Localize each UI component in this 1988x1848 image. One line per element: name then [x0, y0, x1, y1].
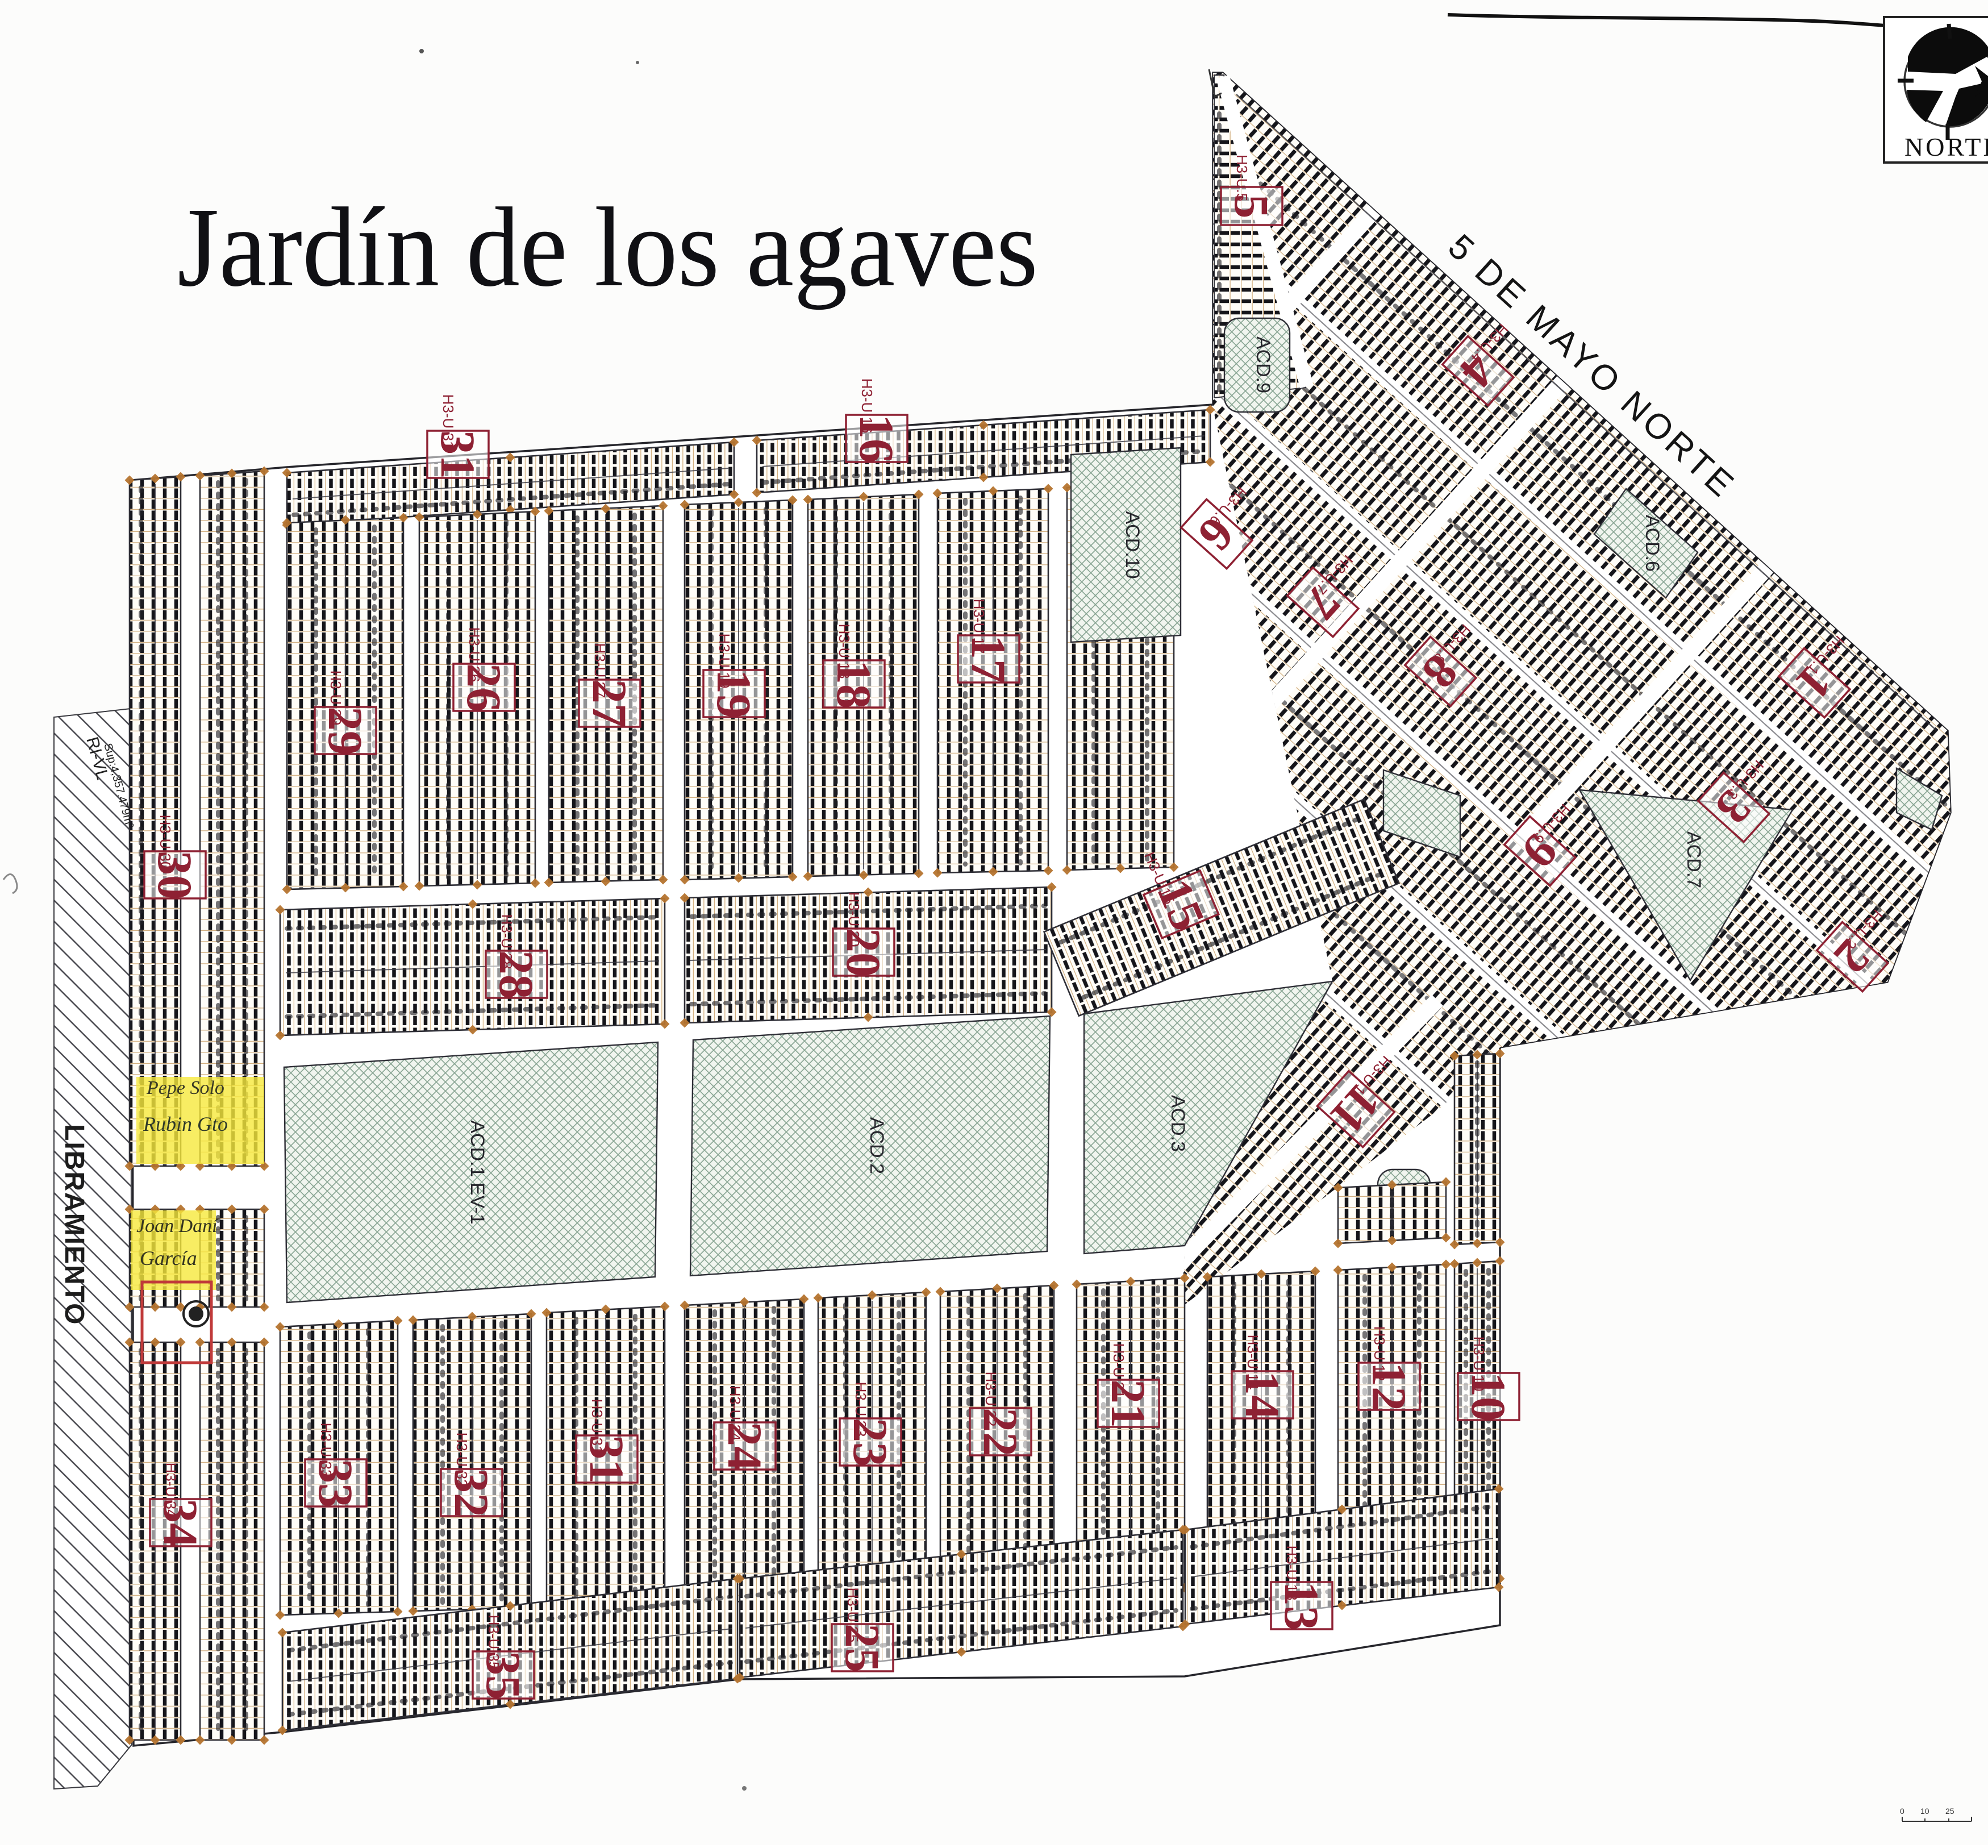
svg-text:García: García — [140, 1247, 197, 1270]
svg-text:31: 31 — [431, 430, 485, 479]
svg-text:32: 32 — [444, 1468, 499, 1517]
svg-text:27: 27 — [582, 679, 637, 728]
svg-text:H3-U.16: H3-U.16 — [858, 378, 876, 434]
svg-text:H3-U.10: H3-U.10 — [1470, 1337, 1487, 1392]
svg-text:NORTE: NORTE — [1904, 132, 1988, 161]
svg-text:ACD.10: ACD.10 — [1122, 511, 1143, 578]
svg-text:18: 18 — [827, 660, 881, 709]
svg-text:ACD.1 EV-1: ACD.1 EV-1 — [466, 1120, 488, 1224]
svg-text:24: 24 — [718, 1422, 772, 1471]
svg-text:H3-U.31: H3-U.31 — [589, 1399, 606, 1454]
svg-text:34: 34 — [153, 1499, 208, 1547]
svg-text:31: 31 — [580, 1435, 634, 1484]
svg-text:H3-U.13: H3-U.13 — [1283, 1546, 1301, 1601]
svg-text:H3-U.17: H3-U.17 — [970, 599, 987, 654]
svg-text:H3-U.34: H3-U.34 — [162, 1463, 180, 1518]
svg-text:30: 30 — [148, 851, 202, 900]
svg-text:20: 20 — [836, 928, 891, 977]
svg-text:28: 28 — [489, 950, 544, 999]
svg-text:ACD.7: ACD.7 — [1683, 831, 1704, 888]
svg-text:21: 21 — [1101, 1379, 1156, 1428]
svg-text:26: 26 — [457, 663, 511, 712]
svg-text:H3-U.31: H3-U.31 — [440, 394, 457, 449]
svg-text:33: 33 — [309, 1459, 363, 1508]
svg-text:Joan Daní: Joan Daní — [136, 1216, 219, 1237]
svg-text:5: 5 — [1224, 194, 1279, 219]
svg-text:H3-U.19: H3-U.19 — [716, 634, 733, 689]
svg-text:25: 25 — [835, 1624, 890, 1672]
svg-text:H3-U.32: H3-U.32 — [453, 1433, 470, 1488]
svg-text:H3-U.27: H3-U.27 — [591, 643, 609, 698]
svg-text:LIBRAMIENTO: LIBRAMIENTO — [59, 1124, 89, 1325]
svg-text:Jardín de los agaves: Jardín de los agaves — [177, 185, 1038, 310]
svg-text:0: 0 — [1900, 1807, 1904, 1816]
svg-text:13: 13 — [1274, 1581, 1329, 1630]
svg-text:17: 17 — [961, 635, 1016, 684]
svg-text:ACD.3: ACD.3 — [1167, 1095, 1189, 1152]
svg-text:14: 14 — [1235, 1371, 1290, 1420]
svg-text:35: 35 — [476, 1651, 531, 1700]
svg-text:16: 16 — [849, 414, 904, 463]
svg-text:ACD.2: ACD.2 — [866, 1117, 887, 1174]
svg-text:10: 10 — [1461, 1372, 1516, 1421]
svg-text:ACD.6: ACD.6 — [1641, 515, 1663, 572]
svg-text:H3-U.23: H3-U.23 — [852, 1382, 869, 1437]
svg-text:H3-U.28: H3-U.28 — [498, 914, 515, 969]
svg-text:19: 19 — [707, 669, 761, 718]
svg-text:Pepe Solo: Pepe Solo — [146, 1077, 224, 1098]
svg-text:29: 29 — [318, 706, 373, 755]
svg-text:H3-U.26: H3-U.26 — [466, 627, 483, 682]
svg-text:12: 12 — [1362, 1362, 1416, 1411]
svg-text:H3-U.12: H3-U.12 — [1371, 1326, 1388, 1381]
svg-text:H3-U.5: H3-U.5 — [1233, 155, 1251, 201]
svg-text:10: 10 — [1920, 1807, 1929, 1816]
svg-text:H3-U.29: H3-U.29 — [327, 671, 344, 726]
svg-text:H3-U.30: H3-U.30 — [157, 815, 174, 870]
svg-text:25: 25 — [1945, 1807, 1954, 1816]
svg-text:H3-U.18: H3-U.18 — [836, 624, 853, 679]
svg-text:H3-U.35: H3-U.35 — [485, 1615, 502, 1670]
svg-text:H3-U.22: H3-U.22 — [982, 1372, 999, 1427]
svg-text:H3-U.21: H3-U.21 — [1110, 1343, 1127, 1399]
svg-text:ACD.9: ACD.9 — [1252, 336, 1274, 393]
svg-text:H3-U.20: H3-U.20 — [845, 892, 862, 947]
svg-text:H3-U.14: H3-U.14 — [1244, 1335, 1261, 1390]
svg-text:H3-U.33: H3-U.33 — [318, 1423, 335, 1478]
svg-text:H3-U.25: H3-U.25 — [844, 1588, 861, 1643]
svg-text:22: 22 — [973, 1408, 1028, 1456]
svg-text:H3-U.24: H3-U.24 — [727, 1386, 744, 1441]
svg-text:23: 23 — [843, 1418, 898, 1467]
svg-text:Rubin Gto: Rubin Gto — [143, 1113, 228, 1135]
